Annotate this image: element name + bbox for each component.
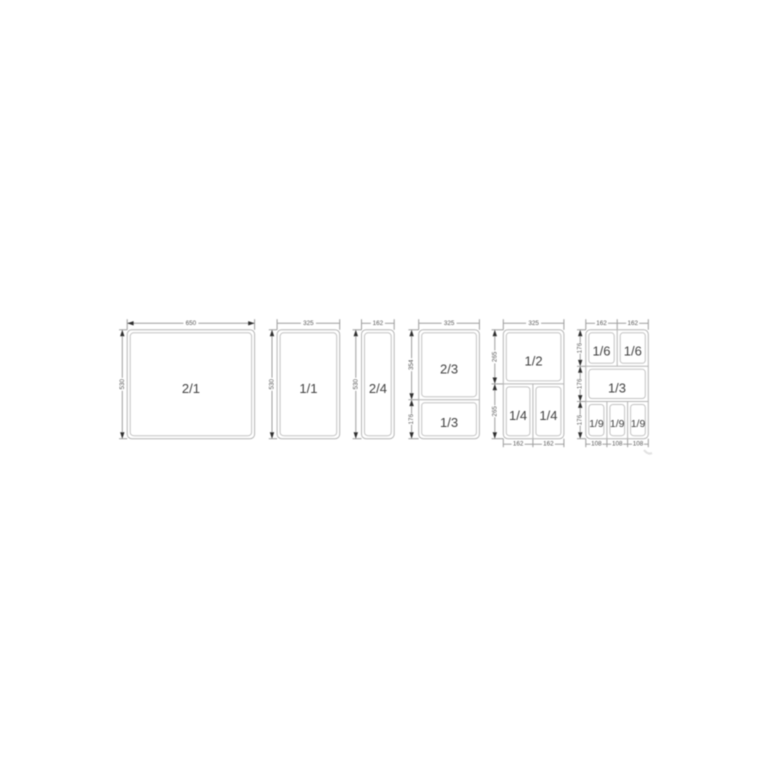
svg-text:530: 530	[269, 378, 276, 389]
svg-text:1/9: 1/9	[631, 418, 646, 430]
svg-text:162: 162	[543, 441, 554, 448]
svg-text:2/1: 2/1	[182, 381, 200, 396]
svg-text:176: 176	[577, 378, 584, 389]
svg-text:176: 176	[577, 414, 584, 425]
svg-text:1/3: 1/3	[608, 381, 626, 396]
svg-text:162: 162	[596, 320, 607, 327]
svg-text:325: 325	[303, 320, 314, 327]
svg-text:325: 325	[444, 320, 455, 327]
svg-text:265: 265	[491, 351, 498, 362]
svg-text:1/4: 1/4	[539, 408, 557, 423]
svg-text:2/4: 2/4	[369, 381, 387, 396]
svg-text:162: 162	[628, 320, 639, 327]
svg-text:108: 108	[633, 441, 644, 448]
svg-text:265: 265	[491, 406, 498, 417]
svg-text:530: 530	[119, 378, 126, 389]
svg-text:176: 176	[577, 342, 584, 353]
svg-text:325: 325	[528, 320, 539, 327]
svg-text:1/9: 1/9	[589, 418, 604, 430]
svg-text:1/1: 1/1	[299, 381, 317, 396]
svg-text:1/9: 1/9	[610, 418, 625, 430]
svg-text:1/6: 1/6	[624, 344, 642, 359]
svg-text:1/6: 1/6	[592, 344, 610, 359]
svg-text:108: 108	[612, 441, 623, 448]
svg-text:176: 176	[408, 413, 415, 424]
svg-text:1/4: 1/4	[509, 408, 527, 423]
svg-text:1/2: 1/2	[525, 354, 543, 369]
svg-text:530: 530	[352, 378, 359, 389]
svg-text:1/3: 1/3	[440, 415, 458, 430]
svg-text:354: 354	[408, 359, 415, 370]
svg-text:650: 650	[186, 320, 197, 327]
svg-text:162: 162	[373, 320, 384, 327]
svg-text:162: 162	[513, 441, 524, 448]
svg-text:108: 108	[591, 441, 602, 448]
svg-text:2/3: 2/3	[440, 362, 458, 377]
